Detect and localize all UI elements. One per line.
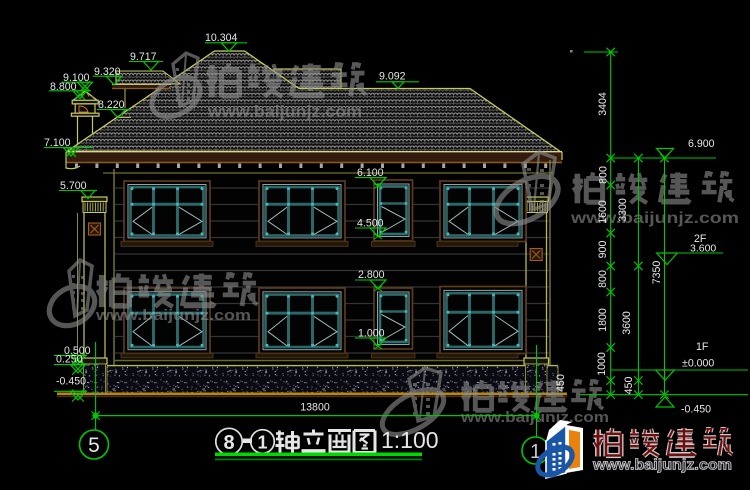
svg-text:-0.450: -0.450 bbox=[56, 376, 86, 388]
svg-text:1000: 1000 bbox=[596, 352, 608, 376]
svg-text:3404: 3404 bbox=[597, 92, 609, 116]
svg-text:5: 5 bbox=[88, 434, 100, 457]
svg-text:9.092: 9.092 bbox=[379, 71, 406, 83]
svg-text:2.800: 2.800 bbox=[358, 269, 385, 281]
svg-text:8: 8 bbox=[223, 432, 234, 454]
svg-text:www.baijunjz.com: www.baijunjz.com bbox=[592, 458, 732, 474]
svg-text:±0.000: ±0.000 bbox=[682, 358, 714, 370]
svg-text:3.600: 3.600 bbox=[690, 243, 716, 255]
svg-text:800: 800 bbox=[597, 270, 609, 288]
svg-text:13800: 13800 bbox=[300, 402, 330, 414]
svg-text:800: 800 bbox=[598, 166, 610, 184]
svg-text:-0.450: -0.450 bbox=[681, 404, 711, 416]
svg-text:www.baijunjz.com: www.baijunjz.com bbox=[95, 307, 251, 324]
svg-text:1:100: 1:100 bbox=[381, 427, 439, 453]
svg-text:1F: 1F bbox=[696, 341, 709, 353]
svg-text:450: 450 bbox=[623, 377, 635, 395]
svg-text:3600: 3600 bbox=[621, 311, 633, 335]
svg-text:0.250: 0.250 bbox=[56, 354, 83, 366]
svg-text:450: 450 bbox=[555, 374, 567, 392]
svg-text:7350: 7350 bbox=[651, 261, 663, 285]
svg-text:1600: 1600 bbox=[597, 200, 609, 224]
svg-text:1: 1 bbox=[257, 433, 267, 453]
svg-text:6.900: 6.900 bbox=[688, 138, 715, 150]
svg-text:3300: 3300 bbox=[617, 198, 629, 222]
svg-text:1800: 1800 bbox=[597, 308, 609, 332]
svg-text:900: 900 bbox=[597, 241, 609, 259]
svg-text:www.baijunjz.com: www.baijunjz.com bbox=[570, 210, 739, 227]
svg-text:www.baijunjz.com: www.baijunjz.com bbox=[207, 102, 362, 121]
